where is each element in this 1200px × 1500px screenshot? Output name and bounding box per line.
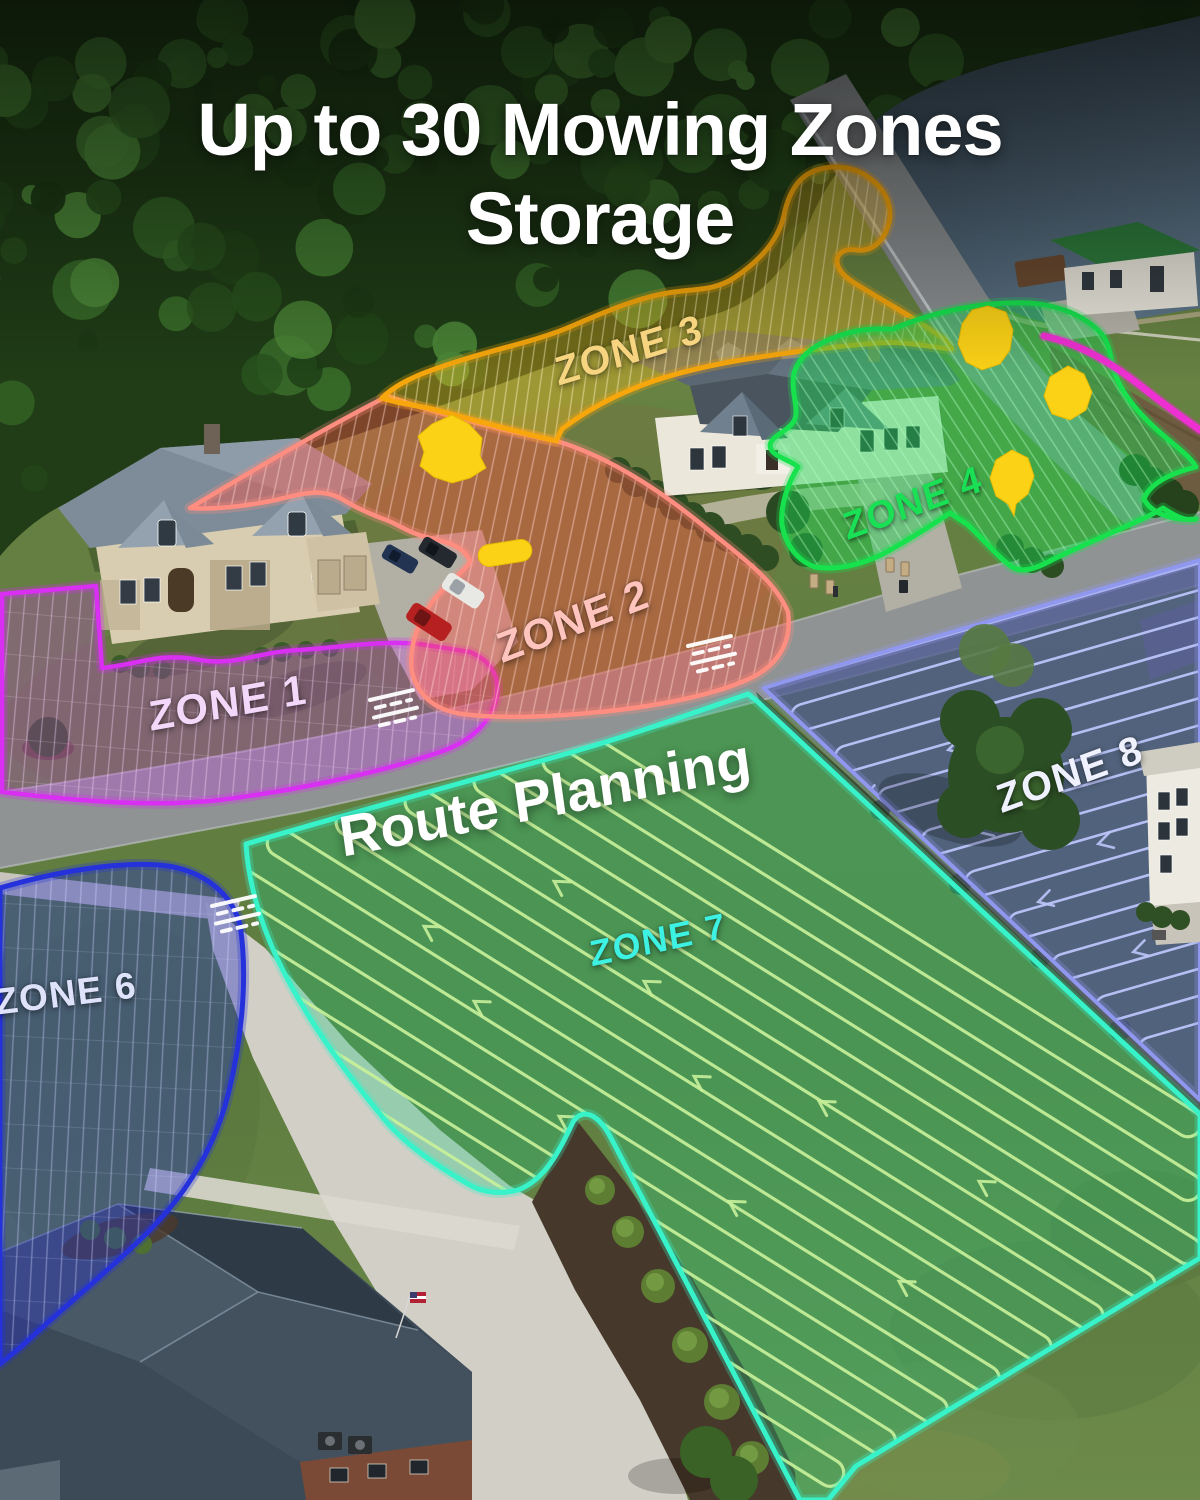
forest-tree bbox=[21, 465, 48, 492]
mower-zones-promo: Up to 30 Mowing Zones Storage Route Plan… bbox=[0, 0, 1200, 1500]
headline: Up to 30 Mowing Zones Storage bbox=[0, 86, 1200, 264]
headline-line1: Up to 30 Mowing Zones bbox=[0, 86, 1200, 175]
trash-bin bbox=[899, 580, 908, 593]
chimney bbox=[204, 424, 220, 454]
headline-line2: Storage bbox=[0, 175, 1200, 264]
mailbox bbox=[833, 586, 838, 597]
entry-door bbox=[168, 568, 194, 612]
